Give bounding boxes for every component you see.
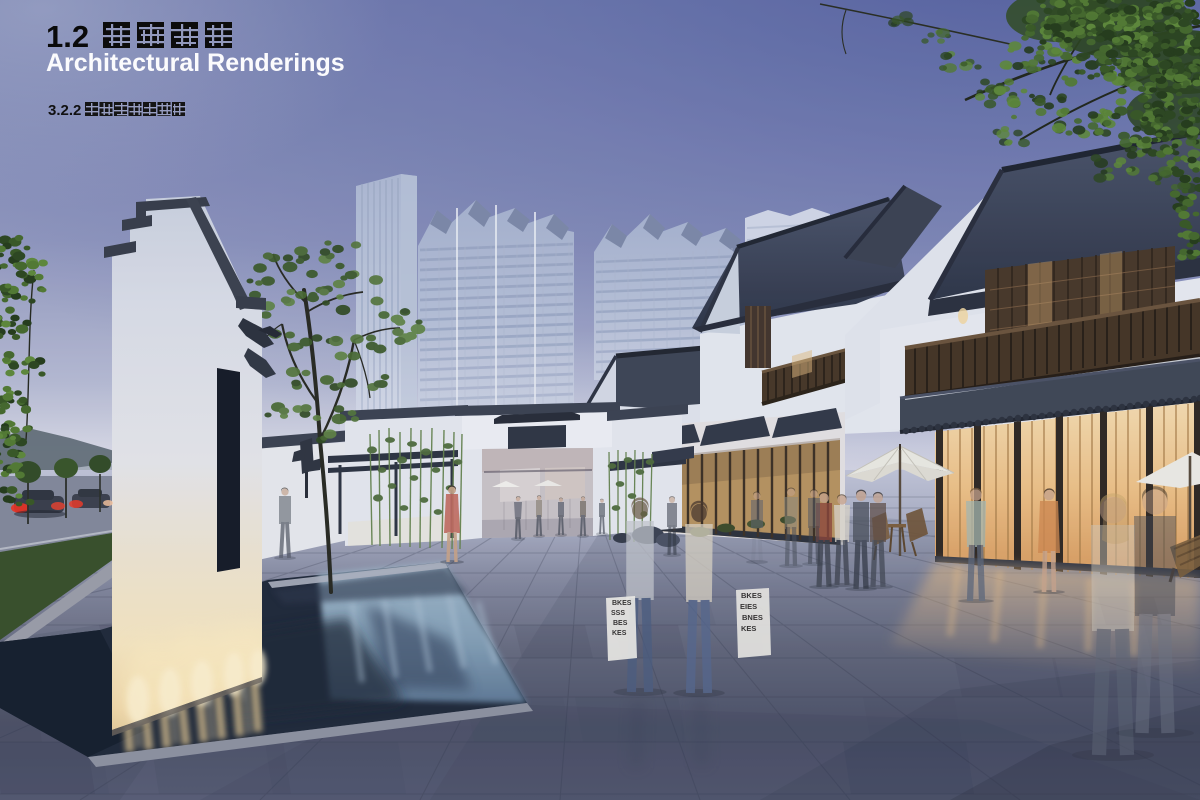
- svg-text:Architectural Renderings: Architectural Renderings: [46, 49, 345, 77]
- svg-text:3.2.2: 3.2.2: [48, 102, 81, 119]
